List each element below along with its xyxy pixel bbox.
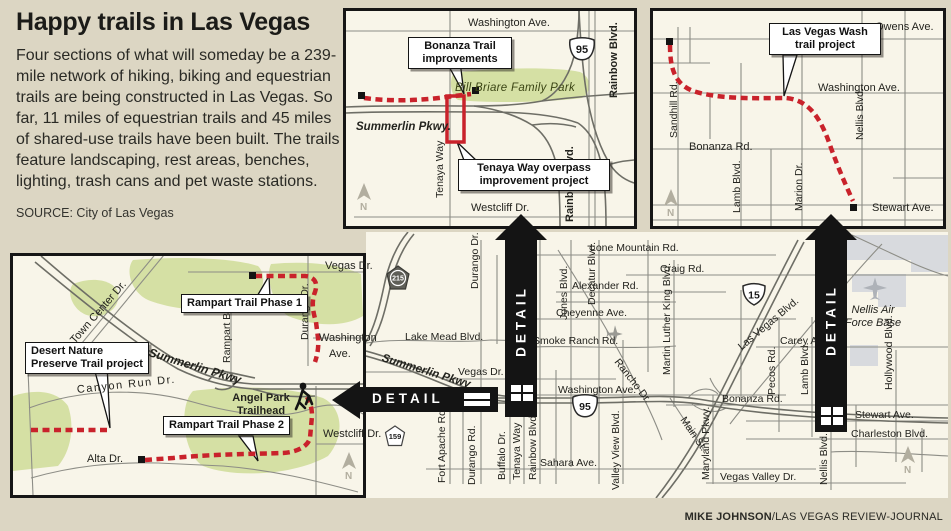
bonanza-detail-panel: 95 N Washington Ave. Rainbow Blvd. Bill … — [343, 8, 637, 229]
street-label: Washington Ave. — [558, 384, 636, 397]
detail-label: DETAIL — [372, 391, 444, 406]
street-label: Alexander Rd. — [572, 280, 639, 293]
street-label: Lamb Blvd. — [731, 160, 744, 213]
detail-arrowhead-up-icon — [495, 214, 547, 240]
svg-text:159: 159 — [389, 432, 402, 441]
svg-text:N: N — [360, 202, 367, 213]
street-label: Charleston Blvd. — [851, 428, 928, 441]
svg-text:95: 95 — [576, 44, 588, 56]
trail-endpoint-marker — [249, 272, 256, 279]
street-label: Stewart Ave. — [872, 202, 934, 215]
detail-arrowhead-up-icon — [805, 214, 857, 240]
detail-label: DETAIL — [824, 284, 839, 356]
nellis-afb-area — [842, 235, 948, 272]
svg-text:215: 215 — [392, 276, 404, 283]
route-215-shield-icon: 215 — [387, 266, 409, 289]
route-159-shield-icon: 159 — [386, 426, 405, 446]
street-label: Alta Dr. — [87, 453, 123, 466]
credit-line: MIKE JOHNSON/LAS VEGAS REVIEW-JOURNAL — [685, 511, 943, 523]
nellis-afb-label: Nellis Air Force Base — [836, 304, 910, 330]
street-label: Nellis Blvd. — [818, 433, 831, 485]
tenaya-overpass-callout: Tenaya Way overpass improvement project — [458, 159, 610, 191]
street-label: Pecos Rd. — [766, 347, 779, 395]
svg-text:95: 95 — [579, 401, 591, 413]
rampart-phase1-callout: Rampart Trail Phase 1 — [181, 294, 308, 313]
detail-label: DETAIL — [514, 285, 529, 357]
street-label: Washington Ave. — [468, 17, 550, 30]
wash-trail-line — [670, 45, 853, 201]
svg-text:N: N — [904, 465, 911, 476]
street-label: Lake Mead Blvd. — [405, 331, 483, 344]
street-label: Smoke Ranch Rd. — [533, 335, 618, 348]
credit-publication: /LAS VEGAS REVIEW-JOURNAL — [772, 511, 943, 523]
street-label: Rainbow Blvd. — [608, 22, 621, 98]
north-arrow-icon: N — [357, 183, 371, 213]
street-label: Vegas Dr. — [325, 260, 373, 273]
street-label: Summerlin Pkwy. — [356, 121, 451, 134]
header-block: Happy trails in Las Vegas Four sections … — [16, 8, 346, 220]
i15-freeway — [656, 240, 804, 498]
street-label: Marion Dr. — [793, 163, 806, 211]
street-label: Tenaya Way — [434, 141, 447, 198]
trail-endpoint-marker — [850, 204, 857, 211]
main-map-roads: 215 159 95 15 N — [366, 232, 948, 498]
rampart-phase2-callout: Rampart Trail Phase 2 — [163, 416, 290, 435]
callout-pointer — [783, 55, 797, 96]
detail-arrowhead-left-icon — [332, 381, 360, 419]
street-label: Buffalo Dr. — [496, 431, 509, 480]
us-95-shield-icon: 95 — [573, 395, 598, 417]
trails-infographic: { "colors":{ "page_bg":"#dcd6c3","panel_… — [0, 0, 951, 531]
street-label: Washington — [319, 332, 377, 345]
svg-text:N: N — [667, 208, 674, 219]
credit-author: MIKE JOHNSON — [685, 511, 772, 523]
us-95-shield-icon: 95 — [570, 38, 595, 60]
detail-area-marker — [509, 383, 535, 403]
street-label: Lone Mountain Rd. — [590, 242, 679, 255]
north-arrow-icon: N — [664, 189, 678, 219]
detail-banner-wash: DETAIL — [815, 239, 847, 432]
detail-banner-bonanza: DETAIL — [505, 239, 537, 417]
wash-trail-callout: Las Vegas Wash trail project — [769, 23, 881, 55]
bonanza-trail-callout: Bonanza Trail improvements — [408, 37, 512, 69]
street-label: Owens Ave. — [875, 21, 934, 34]
street-label: Nellis Blvd. — [854, 88, 867, 140]
source-line: SOURCE: City of Las Vegas — [16, 206, 346, 220]
rampart-detail-panel: N Vegas Dr. Town Center Dr. Durango Dr. … — [10, 253, 366, 498]
park-label: Bill Briare Family Park — [455, 82, 575, 95]
street-label: Rainbow Blvd. — [527, 413, 540, 480]
svg-text:15: 15 — [748, 290, 760, 302]
street-label: Sandhill Rd. — [668, 81, 681, 138]
street-label: Ave. — [329, 348, 351, 361]
page-title: Happy trails in Las Vegas — [16, 8, 346, 37]
trail-endpoint-marker — [666, 38, 673, 45]
street-label: Durango Dr. — [469, 232, 482, 289]
detail-area-marker — [462, 391, 492, 408]
north-arrow-icon: N — [901, 446, 915, 476]
intro-text: Four sections of what will someday be a … — [16, 45, 346, 192]
street-label: Bonanza Rd. — [689, 141, 753, 154]
detail-banner-rampart: DETAIL — [358, 387, 498, 412]
trail-endpoint-marker — [138, 456, 145, 463]
street-label: Durango Rd. — [466, 425, 479, 485]
street-label: Jones Blvd. — [558, 266, 571, 320]
i-15-shield-icon: 15 — [743, 284, 765, 305]
street-label: Decatur Blvd. — [586, 242, 599, 305]
street-label: Lamb Blvd. — [799, 342, 812, 395]
street-label: Tenaya Way — [511, 423, 524, 480]
street-label: Vegas Valley Dr. — [720, 471, 796, 484]
svg-text:N: N — [345, 471, 352, 482]
main-overview-map: 215 159 95 15 N Lone Mountain Rd. Craig … — [366, 232, 948, 498]
preserve-trail-callout: Desert Nature Preserve Trail project — [25, 342, 149, 374]
north-arrow-icon: N — [342, 452, 356, 482]
street-label: Fort Apache Rd. — [436, 407, 449, 483]
street-label: Westcliff Dr. — [323, 428, 381, 441]
trailhead-label: Angel Park Trailhead — [229, 392, 293, 418]
street-label: Martin Luther King Blvd. — [661, 263, 674, 375]
wash-detail-panel: N Owens Ave. Washington Ave. Sandhill Rd… — [650, 8, 946, 229]
detail-area-marker — [819, 405, 845, 427]
street-label: Sahara Ave. — [540, 457, 597, 470]
street-label: Stewart Ave. — [855, 409, 914, 422]
trail-endpoint-marker — [358, 92, 365, 99]
street-label: Valley View Blvd. — [610, 410, 623, 490]
